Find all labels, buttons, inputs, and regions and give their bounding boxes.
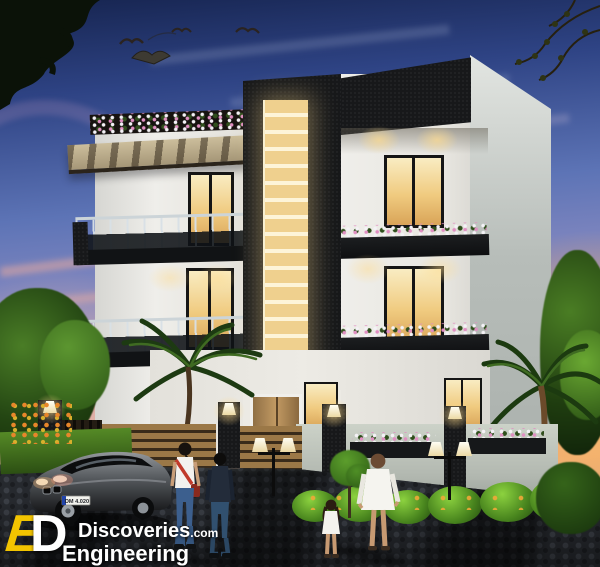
balcony-floor3: [75, 213, 244, 267]
logo-subtitle: Engineering: [62, 541, 189, 567]
underbox-light: [346, 254, 390, 284]
lamp-pole: [448, 452, 451, 500]
person-woman-white-shirt: [354, 452, 402, 556]
wall-planter: [468, 428, 546, 456]
bushes-corner-right: [536, 462, 600, 534]
lamp-shade: [456, 442, 472, 456]
balcony-fascia: [76, 246, 246, 265]
logo-brand: Discoveries.com: [78, 520, 218, 543]
watermark-logo: E D Discoveries.com Engineering: [6, 512, 246, 566]
headlight-glow: [51, 474, 73, 486]
underbox-light: [418, 254, 462, 284]
logo-brand-suffix: .com: [190, 526, 218, 540]
recessed-downlight: [416, 126, 458, 154]
bird-icon: [172, 29, 191, 32]
lamp-shade: [252, 438, 268, 452]
logo-brand-text: Discoveries: [78, 520, 190, 542]
lamp-pole: [272, 448, 275, 496]
underbalcony-light: [196, 264, 238, 292]
window-mullion: [412, 158, 415, 225]
person-child: [316, 498, 346, 564]
bird-icon: [132, 51, 170, 64]
garden-lamp-twin: [428, 442, 472, 500]
lamp-arm: [434, 456, 466, 459]
balcony-side-panel: [73, 222, 89, 265]
window-floor3-right: [384, 155, 444, 228]
branches-top-right: [505, 0, 600, 100]
car-grille: [53, 486, 61, 493]
bird-swoop: [148, 33, 176, 40]
tree-silhouette-top-left: [0, 0, 135, 120]
architectural-render-scene: DM 4.020: [0, 0, 600, 567]
lamp-shade: [280, 438, 296, 452]
lamp-arm: [258, 452, 290, 455]
recessed-downlight: [358, 126, 400, 154]
bird-icon: [236, 28, 259, 33]
garden-lamp-twin: [252, 438, 296, 496]
palm-left: [112, 315, 272, 435]
underbalcony-light: [148, 264, 192, 292]
lamp-shade: [428, 442, 444, 456]
planter-box: [468, 438, 546, 454]
plate-number: DM 4.020: [65, 499, 89, 505]
